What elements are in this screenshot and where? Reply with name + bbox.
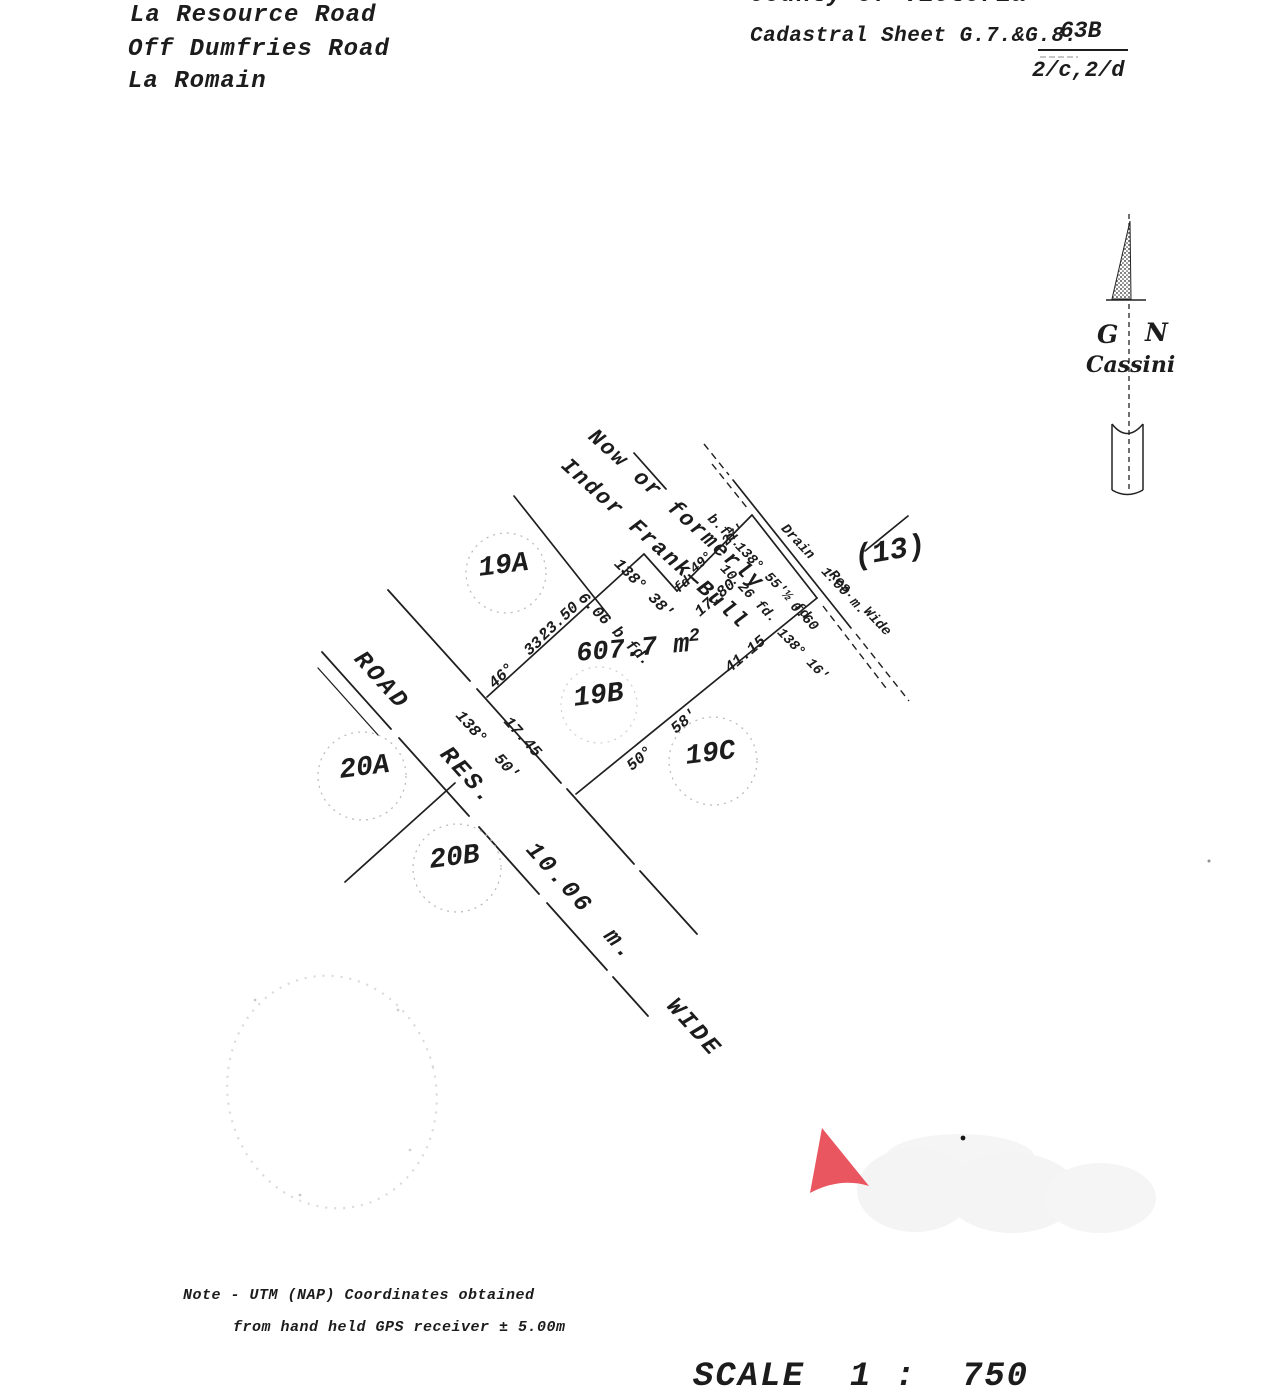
sheet-number: 63B [1060,20,1101,43]
gps-note-line-1: Note - UTM (NAP) Coordinates obtained [183,1288,535,1303]
lot-label-19a: 19A [477,550,530,584]
projection-label: Cassini [1086,354,1175,376]
county-title: County of Victoria [750,0,1027,8]
survey-linework [0,0,1270,1381]
lot-label-19b: 19B [572,680,625,714]
north-arrow-head [1112,221,1131,299]
address-line-2: Off Dumfries Road [128,38,390,62]
lot-label-20a: 20A [338,752,391,786]
scale-statement: SCALE 1 : 750 [693,1360,1029,1394]
lot-label-20b: 20B [428,842,481,876]
watermark-logo [810,1128,1156,1233]
parcel-area-exponent: 2 [688,625,701,647]
address-line-1: La Resource Road [130,4,376,28]
grid-letter: G [1097,322,1118,347]
sheet-code: 2/c,2/d [1032,60,1124,82]
watermark-arrow [810,1128,869,1193]
cadastral-sheet: Cadastral Sheet G.7.&G.8. [750,26,1078,47]
north-letter: N [1145,320,1168,345]
north-arrow-tail [1112,424,1143,495]
sheet-number-underline [1038,50,1128,57]
seal-stamp [203,953,461,1230]
address-line-3: La Romain [128,70,267,94]
lot-label-19c: 19C [684,738,737,772]
stray-mark [1208,860,1211,863]
survey-plan-page: La Resource Road Off Dumfries Road La Ro… [0,0,1270,1381]
gps-note-line-2: from hand held GPS receiver ± 5.00m [233,1320,566,1335]
